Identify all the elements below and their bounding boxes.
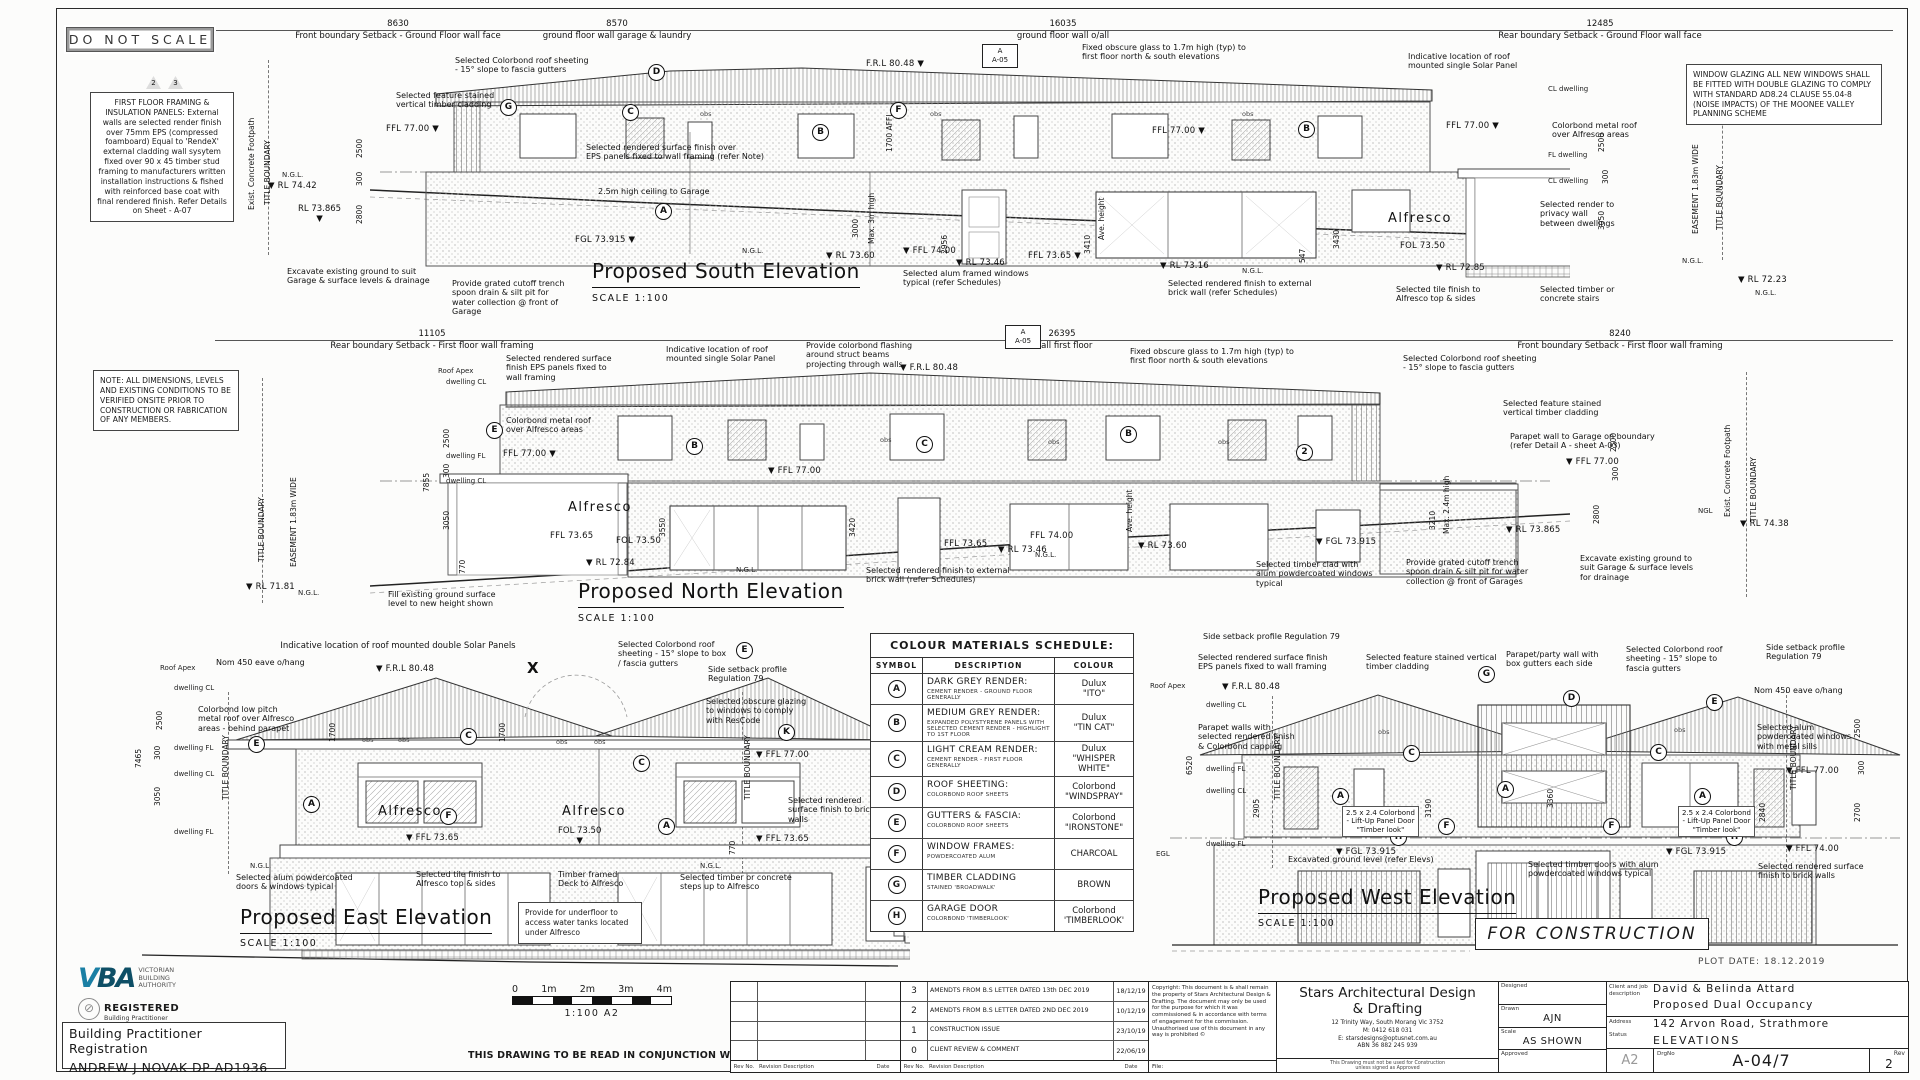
- deck: [302, 950, 910, 959]
- company-cell: Stars Architectural Design & Drafting 12…: [1277, 982, 1499, 1072]
- boundary-line: [262, 378, 263, 603]
- revision-field: CLIENT REVIEW & COMMENT: [928, 1047, 1113, 1054]
- revision-row: 3AMENDTS FROM B.S LETTER DATED 13th DEC …: [901, 982, 1148, 1002]
- revision-row: 0CLIENT REVIEW & COMMENT22/06/19: [901, 1041, 1148, 1060]
- for-construction-stamp: FOR CONSTRUCTION: [1475, 918, 1709, 950]
- revision-row: 1CONSTRUCTION ISSUE23/10/19: [901, 1022, 1148, 1042]
- north-elevation-drawing: [370, 348, 1570, 608]
- schedule-sub-description: STAINED 'BROADWALK': [927, 885, 1050, 891]
- schedule-row: HGARAGE DOORCOLORBOND 'TIMBERLOOK'Colorb…: [871, 901, 1133, 931]
- scale-bar-segment: [632, 997, 652, 1004]
- revision-field: 23/10/19: [1113, 1022, 1148, 1041]
- south-dim-line: [215, 30, 1893, 31]
- scale-bar-label: 3m: [618, 984, 633, 995]
- address-status-labels: Address Status: [1609, 1019, 1649, 1039]
- scale-field: Scale AS SHOWN: [1499, 1028, 1606, 1051]
- schedule-description: GUTTERS & FASCIA:: [927, 811, 1050, 821]
- registration-title: Building Practitioner Registration: [69, 1026, 279, 1056]
- colour-materials-schedule: COLOUR MATERIALS SCHEDULE: SYMBOL DESCRI…: [870, 633, 1134, 932]
- schedule-symbol: H: [888, 907, 906, 925]
- framing-note: FIRST FLOOR FRAMING & INSULATION PANELS:…: [90, 92, 234, 222]
- ground-floor-window: [1096, 192, 1316, 258]
- scale-bar: 01m2m3m4m 1:100 A2: [512, 984, 672, 1019]
- revision-table: 3AMENDTS FROM B.S LETTER DATED 13th DEC …: [901, 982, 1149, 1072]
- schedule-sub-description: EXPANDED POLYSTYRENE PANELS WITH SELECTE…: [927, 720, 1050, 738]
- north-dim-line: [215, 340, 1893, 341]
- revision-field: 3: [901, 982, 928, 1001]
- practitioner-registration-box: Building Practitioner Registration ANDRE…: [62, 1022, 286, 1069]
- company-name: Stars Architectural Design & Drafting: [1299, 982, 1476, 1017]
- scale-bar-segment: [592, 997, 612, 1004]
- schedule-symbol: D: [888, 783, 906, 801]
- dimensions-note: NOTE: ALL DIMENSIONS, LEVELS AND EXISTIN…: [93, 370, 239, 431]
- garage-parapet: [1380, 484, 1518, 490]
- schedule-colour: BROWN: [1055, 870, 1133, 900]
- scale-bar-segment: [533, 997, 553, 1004]
- scale-bar-label: 0: [512, 984, 518, 995]
- alfresco-roof-slab: [440, 474, 628, 483]
- company-note: This Drawing must not be used for Constr…: [1277, 1058, 1498, 1072]
- alfresco-opening: [1475, 178, 1570, 266]
- schedule-sub-description: CEMENT RENDER - GROUND FLOOR GENERALLY: [927, 689, 1050, 701]
- schedule-symbol: B: [888, 714, 906, 732]
- drawing-number-cell: DrgNo A-04/7: [1654, 1049, 1870, 1072]
- scale-bar-segment: [572, 997, 592, 1004]
- garage-wall: [1380, 490, 1518, 574]
- schedule-row: GTIMBER CLADDINGSTAINED 'BROADWALK'BROWN: [871, 870, 1133, 901]
- schedule-row: ADARK GREY RENDER:CEMENT RENDER - GROUND…: [871, 674, 1133, 705]
- garage-door-right: [1694, 871, 1812, 943]
- roof: [506, 373, 1380, 407]
- designed-field: Designed: [1499, 982, 1606, 1005]
- job-description: Proposed Dual Occupancy: [1653, 998, 1908, 1014]
- revision-field: 2: [901, 1002, 928, 1021]
- registration-name: ANDREW J NOVAK DP-AD1936: [69, 1060, 279, 1075]
- schedule-description: TIMBER CLADDING: [927, 873, 1050, 883]
- schedule-sub-description: COLORBOND 'TIMBERLOOK': [927, 916, 1050, 922]
- roof: [436, 68, 1432, 106]
- schedule-header-symbol: SYMBOL: [871, 658, 923, 673]
- client-label: Client and job description: [1609, 984, 1649, 997]
- schedule-colour: CHARCOAL: [1055, 839, 1133, 869]
- scale-bar-ratio: 1:100 A2: [512, 1008, 672, 1019]
- schedule-sub-description: POWDERCOATED ALUM: [927, 854, 1050, 860]
- vba-logo-block: VBA VICTORIAN BUILDING AUTHORITY ⊘ REGIS…: [78, 963, 179, 1022]
- scale-bar-label: 1m: [541, 984, 556, 995]
- schedule-sub-description: COLORBOND ROOF SHEETS: [927, 823, 1050, 829]
- scale-bar-segment: [651, 997, 671, 1004]
- revision-field: 10/12/19: [1113, 1002, 1148, 1021]
- schedule-row: BMEDIUM GREY RENDER:EXPANDED POLYSTYRENE…: [871, 705, 1133, 742]
- schedule-colour: Dulux "WHISPER WHITE": [1055, 742, 1133, 776]
- company-details: 12 Trinity Way, South Morang Vic 3752 M:…: [1331, 1020, 1443, 1058]
- schedule-row: EGUTTERS & FASCIA:COLORBOND ROOF SHEETSC…: [871, 808, 1133, 839]
- do-not-scale-stamp: DO NOT SCALE: [66, 27, 214, 52]
- registered-label: REGISTERED: [104, 1003, 179, 1014]
- revision-row: 2AMENDTS FROM B.S LETTER DATED 2ND DEC 2…: [901, 1002, 1148, 1022]
- schedule-colour: Colorbond "WINDSPRAY": [1055, 777, 1133, 807]
- roof-left: [236, 678, 612, 740]
- schedule-symbol: F: [888, 845, 906, 863]
- revision-table-empty: Rev No. Revision Description Date: [731, 982, 901, 1072]
- sheet-title: ELEVATIONS: [1653, 1033, 1908, 1048]
- schedule-sub-description: CEMENT RENDER - FIRST FLOOR GENERALLY: [927, 757, 1050, 769]
- schedule-description: DARK GREY RENDER:: [927, 677, 1050, 687]
- schedule-headers: SYMBOL DESCRIPTION COLOUR: [871, 658, 1133, 674]
- schedule-title: COLOUR MATERIALS SCHEDULE:: [871, 634, 1133, 658]
- scale-bar-segment: [513, 997, 533, 1004]
- client-cell: Client and job description David & Belin…: [1607, 982, 1908, 1072]
- scale-bar-segment: [553, 997, 573, 1004]
- drawing-number: A-04/7: [1732, 1051, 1790, 1070]
- schedule-row: FWINDOW FRAMES:POWDERCOATED ALUMCHARCOAL: [871, 839, 1133, 870]
- copyright-text: Copyright: This document is & shall rema…: [1149, 982, 1276, 1060]
- paper-size: A2: [1607, 1049, 1654, 1072]
- schedule-colour: Dulux "ITO": [1055, 674, 1133, 704]
- address: 142 Arvon Road, Strathmore: [1653, 1017, 1908, 1033]
- schedule-description: LIGHT CREAM RENDER:: [927, 745, 1050, 755]
- revision-field: AMENDTS FROM B.S LETTER DATED 13th DEC 2…: [928, 988, 1113, 995]
- registered-seal-icon: ⊘: [78, 998, 100, 1020]
- water-tank-note: Provide for underfloor to access water t…: [518, 902, 642, 944]
- boundary-line: [268, 60, 269, 255]
- schedule-symbol: C: [888, 750, 906, 768]
- scale-bar-label: 2m: [580, 984, 595, 995]
- vba-name: VICTORIAN BUILDING AUTHORITY: [138, 967, 176, 989]
- revision-cell: Rev 2: [1870, 1049, 1908, 1072]
- schedule-description: MEDIUM GREY RENDER:: [927, 708, 1050, 718]
- vba-logo: VBA: [78, 963, 134, 994]
- schedule-sub-description: COLORBOND ROOF SHEETS: [927, 792, 1050, 798]
- schedule-colour: Colorbond 'TIMBERLOOK': [1055, 901, 1133, 931]
- glazing-note: WINDOW GLAZING ALL NEW WINDOWS SHALL BE …: [1686, 64, 1882, 125]
- schedule-row: CLIGHT CREAM RENDER:CEMENT RENDER - FIRS…: [871, 742, 1133, 777]
- south-elevation-drawing: [370, 40, 1570, 292]
- schedule-description: WINDOW FRAMES:: [927, 842, 1050, 852]
- fields-cell: Designed Drawn AJN Scale AS SHOWN Approv…: [1499, 982, 1607, 1072]
- registered-sub: Building Practitioner: [104, 1015, 179, 1022]
- copyright-cell: Copyright: This document is & shall rema…: [1149, 982, 1277, 1072]
- title-block: Rev No. Revision Description Date 3AMEND…: [730, 981, 1909, 1073]
- revision-field: 22/06/19: [1113, 1041, 1148, 1060]
- parapet: [1234, 763, 1244, 839]
- scale-bar-segment: [612, 997, 632, 1004]
- revision-number: 2: [1885, 1051, 1893, 1071]
- revision-field: 1: [901, 1022, 928, 1041]
- schedule-header-colour: COLOUR: [1055, 658, 1133, 673]
- scale-bar-label: 4m: [657, 984, 672, 995]
- revision-field: 0: [901, 1041, 928, 1060]
- client-name: David & Belinda Attard: [1653, 982, 1908, 998]
- approved-field: Approved: [1499, 1050, 1606, 1072]
- drawing-sheet: DO NOT SCALE FIRST FLOOR FRAMING & INSUL…: [0, 0, 1920, 1080]
- revision-field: CONSTRUCTION ISSUE: [928, 1027, 1113, 1034]
- scale-bar-segments: [512, 996, 672, 1005]
- boundary-line: [1746, 372, 1747, 597]
- roof-right: [596, 678, 900, 740]
- file-label: File:: [1149, 1060, 1276, 1072]
- schedule-description: GARAGE DOOR: [927, 904, 1050, 914]
- alfresco-roof-slab: [1458, 169, 1570, 178]
- schedule-header-description: DESCRIPTION: [923, 658, 1055, 673]
- drawn-field: Drawn AJN: [1499, 1005, 1606, 1028]
- revision-field: 18/12/19: [1113, 982, 1148, 1001]
- alfresco-opening: [457, 483, 618, 575]
- solar-panel-indicative: [525, 675, 627, 717]
- schedule-row: DROOF SHEETING:COLORBOND ROOF SHEETSColo…: [871, 777, 1133, 808]
- plot-date: PLOT DATE: 18.12.2019: [1698, 957, 1898, 967]
- schedule-description: ROOF SHEETING:: [927, 780, 1050, 790]
- door: [898, 498, 940, 578]
- parapet-band: [280, 845, 910, 858]
- revision-field: AMENDTS FROM B.S LETTER DATED 2ND DEC 20…: [928, 1008, 1113, 1015]
- schedule-colour: Colorbond "IRONSTONE": [1055, 808, 1133, 838]
- schedule-colour: Dulux "TIN CAT": [1055, 705, 1133, 741]
- schedule-symbol: A: [888, 680, 906, 698]
- garage-door-left: [1298, 871, 1420, 943]
- schedule-symbol: E: [888, 814, 906, 832]
- schedule-symbol: G: [888, 876, 906, 894]
